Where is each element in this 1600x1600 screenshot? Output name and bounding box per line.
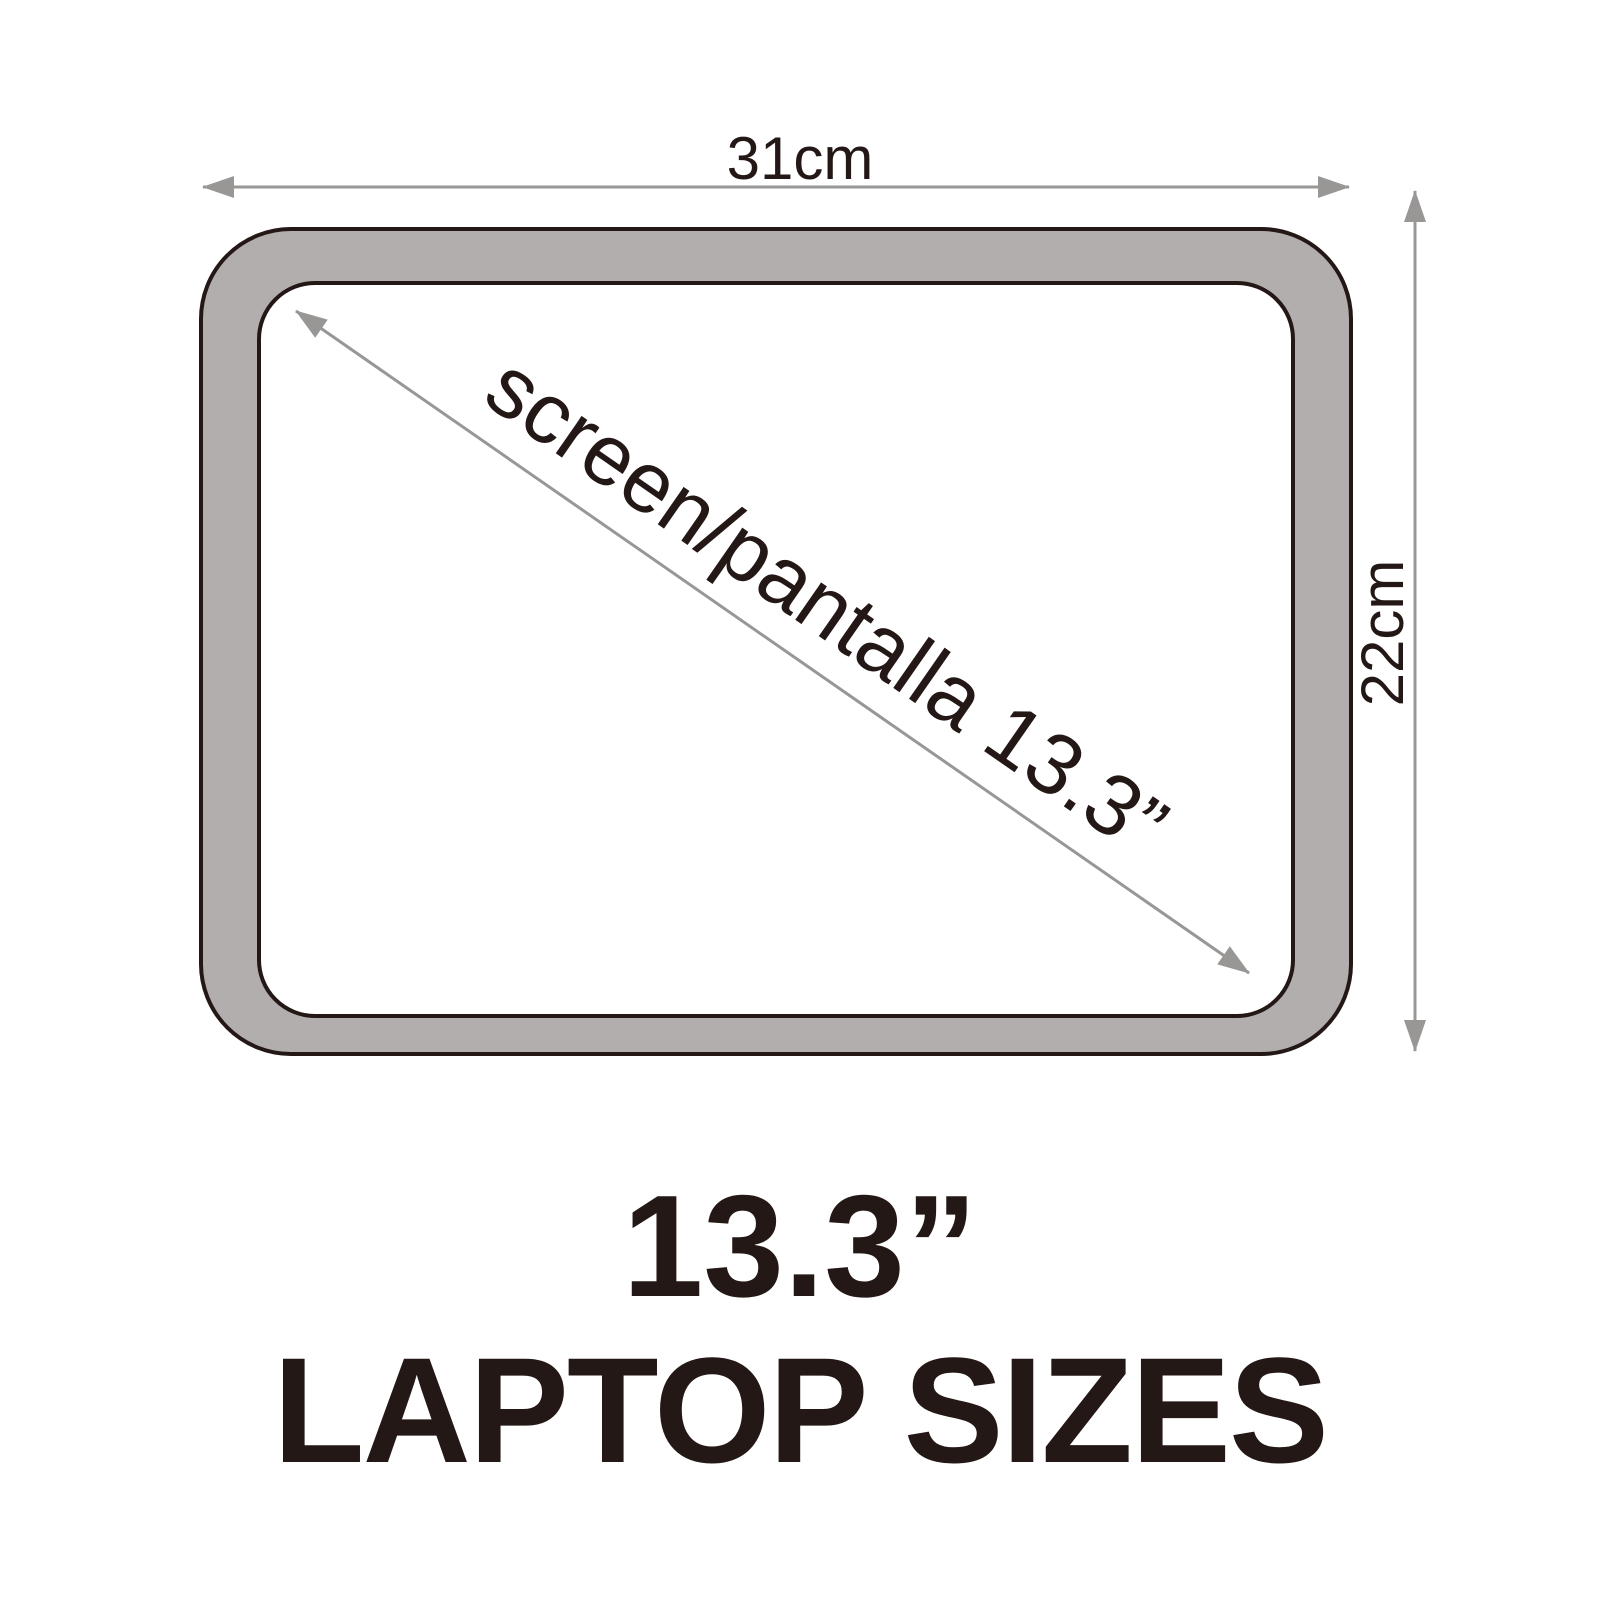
height-dimension-label: 22cm bbox=[1349, 560, 1416, 707]
width-dimension-label: 31cm bbox=[727, 125, 874, 192]
caption-size-label: 13.3” bbox=[623, 1165, 978, 1327]
caption-title: LAPTOP SIZES bbox=[273, 1326, 1327, 1494]
laptop-size-infographic: 31cm 22cm screen/pantalla 13.3” 13.3” LA… bbox=[0, 0, 1600, 1600]
laptop-size-diagram: 31cm 22cm screen/pantalla 13.3” 13.3” LA… bbox=[0, 0, 1600, 1600]
